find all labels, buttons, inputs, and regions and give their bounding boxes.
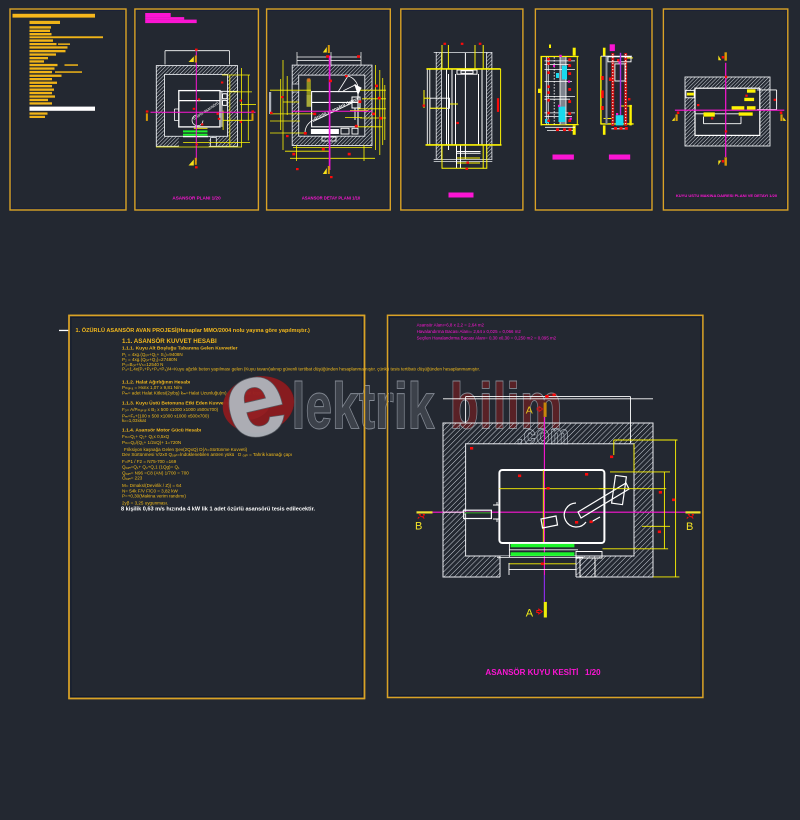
svg-text:kₙ=1,03xkat: kₙ=1,03xkat — [122, 418, 147, 423]
svg-text:lektrik: lektrik — [292, 370, 435, 442]
svg-text:Fₒ= A/Pₘₐₖₐₗ x B₂ x 500 x1000: Fₒ= A/Pₘₐₖₐₗ x B₂ x 500 x1000 x1000 x500… — [122, 407, 219, 412]
svg-text:Öₒₐₙ= 223: Öₒₐₙ= 223 — [122, 475, 143, 481]
svg-text:P=+0,30(Makina verim randımı): P=+0,30(Makina verim randımı) — [122, 494, 186, 499]
svg-text:ASANSOR PLANI 1/20: ASANSOR PLANI 1/20 — [172, 196, 221, 201]
svg-text:B: B — [415, 521, 422, 533]
svg-text:B: B — [686, 521, 693, 533]
svg-text:1.1. ASANSÖR KUVVET HESABI: 1.1. ASANSÖR KUVVET HESABI — [122, 338, 217, 345]
svg-text:Qₒₐₙ=Q₁+ Q₂+Q,1 (1Qg)= Q₁: Qₒₐₙ=Q₁+ Q₂+Q,1 (1Qg)= Q₁ — [122, 465, 180, 470]
svg-text:1.1.4. Asansör Motor Gücü Hesa: 1.1.4. Asansör Motor Gücü Hesabı — [122, 427, 202, 433]
svg-text:Pₘₐₖₐ = Hxnx 1,07 x 9,81 N/m: Pₘₐₖₐ = Hxnx 1,07 x 9,81 N/m — [122, 385, 182, 390]
svg-text:Pₘ=Qₒ/(Q₁+ 1/2xQ)+ 1=720N: Pₘ=Qₒ/(Q₁+ 1/2xQ)+ 1=720N — [122, 440, 181, 445]
svg-text:Havalandırma Bacası Alanı= 2,6: Havalandırma Bacası Alanı= 2,64 x 0,025 … — [417, 329, 522, 334]
svg-text:2yβ = 3,25 uygunması.: 2yβ = 3,25 uygunması. — [122, 501, 168, 506]
svg-text:ASANSOR DETAY PLANI 1/10: ASANSOR DETAY PLANI 1/10 — [302, 196, 361, 201]
svg-text:KUYU USTU MAKINA DAIRESI PLANI: KUYU USTU MAKINA DAIRESI PLANI VE DETAYI… — [676, 193, 778, 198]
svg-text:ASANSÖR KUYU KESİTİ 1/20: ASANSÖR KUYU KESİTİ 1/20 — [485, 668, 601, 677]
svg-text:M= Dmaks/(Devirlik / Z)) = 64: M= Dmaks/(Devirlik / Z)) = 64 — [122, 483, 182, 488]
svg-text:F=P1 / F2 = N75-700 =169: F=P1 / F2 = N75-700 =169 — [122, 459, 177, 464]
svg-text:A: A — [526, 607, 534, 619]
svg-text:1.1.3. Kuyu Üstü Betonuna Etki: 1.1.3. Kuyu Üstü Betonuna Etki Eden Kuvv… — [122, 399, 231, 406]
svg-text:Seçilen Havalandırma Bacası Al: Seçilen Havalandırma Bacası Alanı= 0,30 … — [417, 336, 557, 341]
svg-text:Fₘ=Q₁+ Q₂+ Q₁x 0,5xQ: Fₘ=Q₁+ Q₂+ Q₁x 0,5xQ — [122, 434, 170, 439]
svg-text:1. ÖZÜRLÜ ASANSÖR AVAN PROJESİ: 1. ÖZÜRLÜ ASANSÖR AVAN PROJESİ(Hesaplar … — [76, 327, 311, 334]
svg-text:A: A — [526, 404, 533, 416]
svg-text:8 kişilik 0,63 m/s hızında 4 k: 8 kişilik 0,63 m/s hızında 4 kW lik 1 ad… — [121, 507, 315, 513]
svg-text:Asansör Alanı=6,8 x 2,2 = 2,64: Asansör Alanı=6,8 x 2,2 = 2,64 m2 — [417, 323, 485, 328]
